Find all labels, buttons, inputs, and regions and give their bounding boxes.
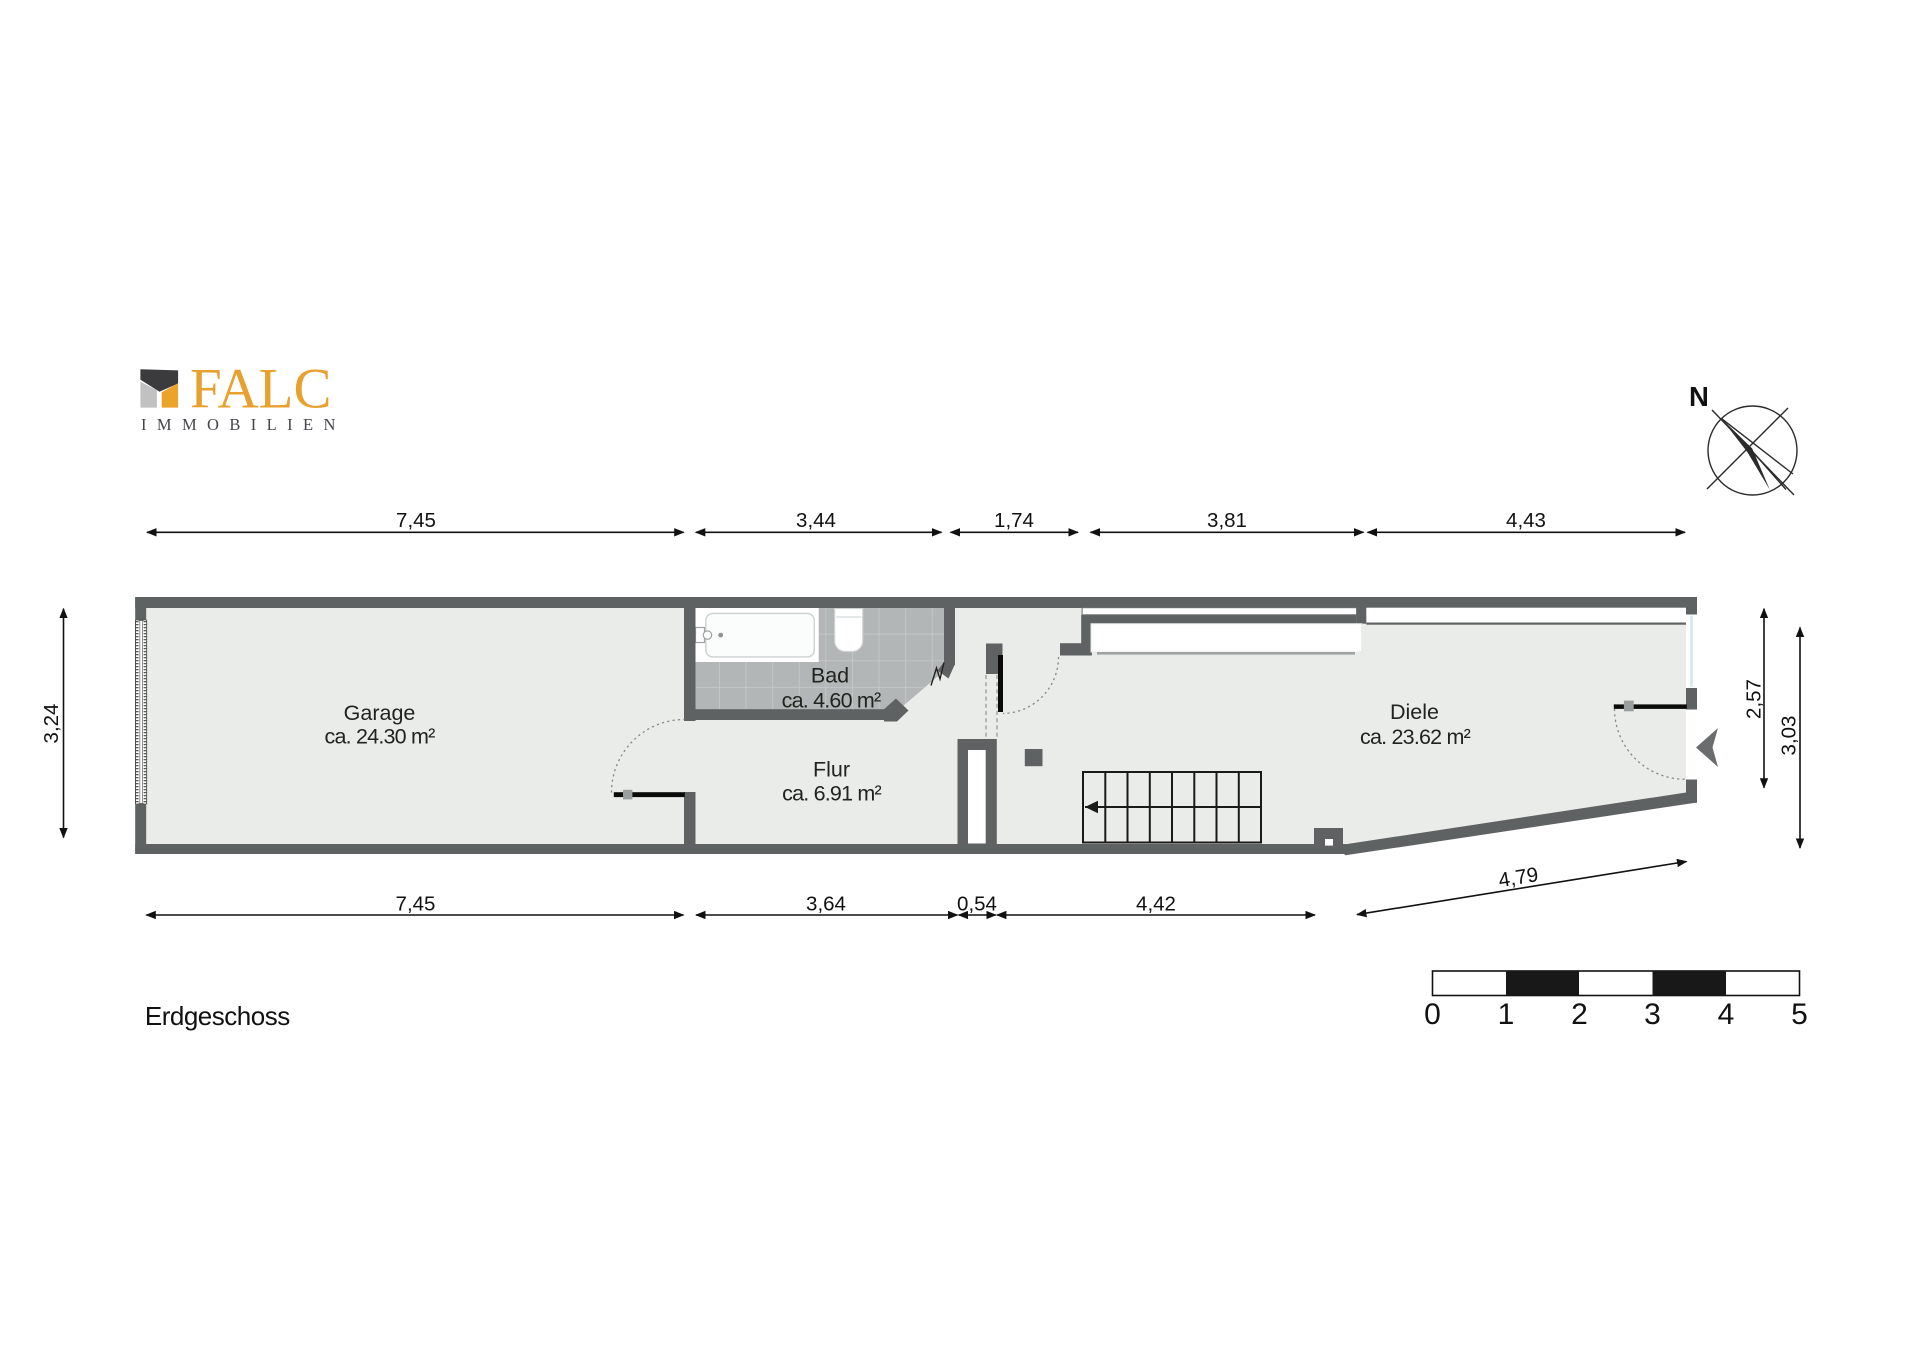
svg-text:ca. 24.30 m²: ca. 24.30 m²: [325, 725, 436, 749]
svg-text:Bad: Bad: [811, 664, 849, 688]
svg-text:IMMOBILIEN: IMMOBILIEN: [141, 415, 346, 434]
svg-text:Diele: Diele: [1390, 700, 1439, 724]
svg-text:3: 3: [1644, 998, 1661, 1031]
svg-text:0,54: 0,54: [957, 892, 997, 915]
svg-text:5: 5: [1791, 998, 1808, 1031]
svg-text:2,57: 2,57: [1743, 679, 1766, 719]
svg-text:3,64: 3,64: [806, 892, 846, 915]
svg-text:3,44: 3,44: [796, 509, 836, 532]
svg-text:0: 0: [1424, 998, 1441, 1031]
svg-text:ca. 4.60 m²: ca. 4.60 m²: [782, 689, 881, 713]
svg-text:4: 4: [1718, 998, 1735, 1031]
svg-text:Flur: Flur: [813, 758, 850, 782]
svg-text:4,43: 4,43: [1506, 509, 1546, 532]
svg-text:1,74: 1,74: [994, 509, 1034, 532]
svg-text:FALC: FALC: [190, 358, 331, 421]
svg-text:1: 1: [1498, 998, 1515, 1031]
svg-text:N: N: [1689, 381, 1709, 412]
svg-text:2: 2: [1571, 998, 1588, 1031]
svg-text:7,45: 7,45: [396, 892, 436, 915]
svg-text:4,42: 4,42: [1136, 892, 1176, 915]
svg-text:Erdgeschoss: Erdgeschoss: [145, 1001, 290, 1031]
svg-text:3,24: 3,24: [40, 704, 63, 744]
svg-text:4,79: 4,79: [1497, 863, 1540, 892]
svg-text:7,45: 7,45: [396, 509, 436, 532]
svg-text:Garage: Garage: [344, 701, 416, 725]
svg-text:3,81: 3,81: [1207, 509, 1247, 532]
svg-text:ca. 6.91 m²: ca. 6.91 m²: [782, 782, 881, 806]
svg-text:ca. 23.62 m²: ca. 23.62 m²: [1360, 725, 1471, 749]
svg-text:3,03: 3,03: [1778, 716, 1801, 756]
